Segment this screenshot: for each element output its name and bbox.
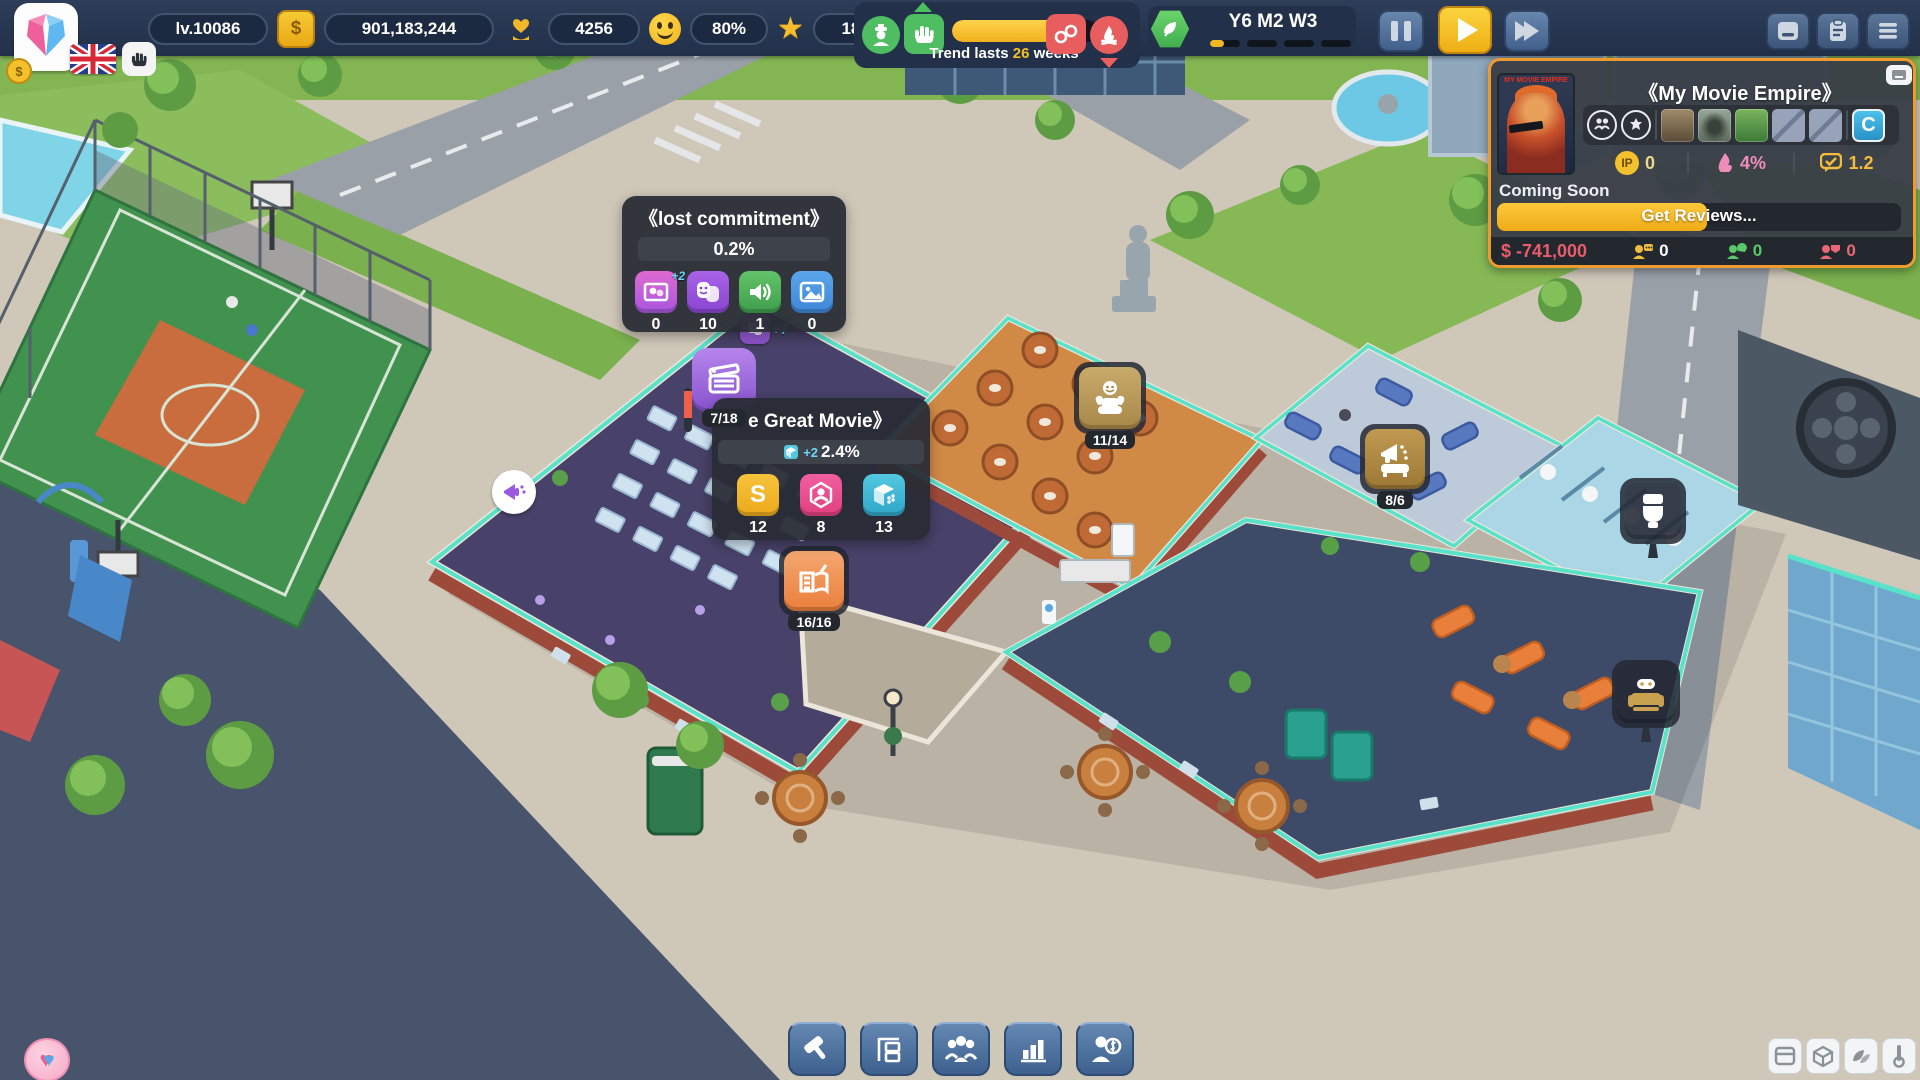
mascot (884, 727, 902, 745)
get-reviews-progress[interactable]: Get Reviews... (1497, 203, 1901, 231)
heat-flame-icon (1716, 152, 1734, 174)
menu-button[interactable] (1866, 12, 1910, 50)
fans-value: 4256 (575, 19, 613, 39)
studio-icon: S (737, 474, 779, 516)
megaphone-icon (501, 479, 527, 505)
pause-icon (1391, 21, 1398, 41)
movie-balance: $ -741,000 (1501, 241, 1632, 262)
level-value: lv.10086 (176, 19, 241, 39)
review-check-icon (1820, 153, 1842, 173)
build-toolbar (788, 1022, 1134, 1076)
stat-value: 10 (699, 316, 717, 334)
trend-up-icon (914, 2, 932, 12)
star-icon: ★ (777, 13, 804, 45)
trend-indicator[interactable]: Trend lasts 26 weeks (854, 2, 1140, 68)
movie-share: 2.4% (821, 442, 860, 462)
week-progress (1210, 40, 1351, 47)
viewers-count: 0 (1659, 241, 1668, 261)
hammer-icon (800, 1032, 834, 1066)
date-display: Y6 M2 W3 (1148, 6, 1356, 52)
scene-thumbnail-1[interactable] (1661, 109, 1694, 142)
lounge-badge[interactable] (1612, 660, 1680, 742)
staff-icon (944, 1033, 978, 1065)
actor-desk-icon (1079, 367, 1141, 429)
cards-button[interactable] (1766, 12, 1810, 50)
finance-button[interactable] (1076, 1022, 1134, 1076)
fans-pill: 4256 (548, 13, 640, 45)
staff-button[interactable] (932, 1022, 990, 1076)
minimize-icon (1892, 70, 1906, 80)
crew-badge[interactable]: C (1852, 109, 1885, 142)
set-icon (863, 474, 905, 516)
movie-poster: MY MOVIE EMPIRE (1499, 75, 1573, 173)
fan-hand-icon (503, 11, 539, 47)
megaphone-couch-icon (1365, 429, 1425, 489)
viewers-icon (1632, 242, 1654, 260)
build-button[interactable] (788, 1022, 846, 1076)
heart-icon: ♥ (43, 1051, 54, 1070)
hud-stats: lv.10086 $ 901,183,244 4256 80% ★ 18 (148, 10, 889, 48)
script-room-badge[interactable]: 16/16 (779, 546, 849, 631)
toilet-icon (1625, 483, 1681, 539)
stat-value: 0 (652, 316, 661, 334)
get-reviews-label: Get Reviews... (1497, 206, 1901, 226)
game-screen: +7 7/18 16/16 (0, 0, 1920, 1080)
stat-value: 1 (756, 316, 765, 334)
scene-thumbnail-3[interactable] (1735, 109, 1768, 142)
script-capacity: 16/16 (788, 613, 839, 631)
gem-heart-icon (23, 12, 69, 62)
drama-masks-icon (687, 271, 729, 313)
stat-value: 13 (875, 519, 893, 537)
fist-icon (128, 48, 150, 70)
set-mini-icon (782, 443, 800, 461)
likes-button[interactable]: ♥ ♥ (24, 1038, 70, 1080)
money-value: 901,183,244 (362, 19, 457, 39)
card-icon (1776, 20, 1800, 42)
leaf-icon (1850, 1046, 1872, 1066)
happiness-icon (649, 13, 681, 45)
campfire-icon (1090, 16, 1128, 54)
play-button[interactable] (1438, 6, 1492, 54)
play-icon (1458, 18, 1478, 42)
script-book-icon (784, 551, 844, 611)
empty-scene-slot[interactable] (1809, 109, 1842, 142)
staff-buff-bubble[interactable] (492, 470, 536, 514)
movie-project-panel[interactable]: MY MOVIE EMPIRE 《My Movie Empire》 (1488, 58, 1916, 268)
movie-boost: +2 (803, 445, 818, 460)
casting-icon (800, 474, 842, 516)
empty-scene-slot[interactable] (1772, 109, 1805, 142)
rating-value: 1.2 (1848, 153, 1873, 174)
stat-value: 0 (808, 316, 817, 334)
audio-icon (739, 271, 781, 313)
poster-title: MY MOVIE EMPIRE (1499, 77, 1573, 84)
trend-down-icon (1100, 58, 1118, 68)
stat-value: 8 (817, 519, 826, 537)
sofa-game-icon (1617, 665, 1675, 723)
movement-badge[interactable] (122, 42, 156, 76)
negative-reviews-icon (1819, 242, 1841, 260)
furniture-icon (873, 1033, 905, 1065)
movie-title: 《My Movie Empire》 (1579, 77, 1901, 106)
handcuffs-icon (1046, 14, 1086, 54)
ip-icon: IP (1615, 151, 1639, 175)
coin-icon: $ (277, 10, 315, 48)
movie-tooltip-title: e Great Movie》 (748, 406, 926, 433)
temperature-button[interactable] (1882, 1038, 1916, 1074)
ip-value: 0 (1645, 153, 1655, 174)
money-pill: 901,183,244 (324, 13, 494, 45)
game-date: Y6 M2 W3 (1198, 11, 1348, 33)
stats-button[interactable] (1004, 1022, 1062, 1076)
trend-share: 0.2% (638, 237, 830, 261)
menu-icon (1877, 21, 1899, 41)
toilet-badge[interactable] (1620, 478, 1686, 558)
heat-value: 4% (1740, 153, 1766, 174)
movie-status: Coming Soon (1499, 181, 1609, 201)
stat-badge: +2 (671, 269, 685, 283)
stat-value: 12 (749, 519, 767, 537)
positive-reviews-icon (1726, 242, 1748, 260)
trend-tooltip: 《lost commitment》 0.2% +2 0 (622, 196, 846, 332)
cube-icon (1812, 1045, 1834, 1067)
environment-button[interactable] (1844, 1038, 1878, 1074)
movie-footer: $ -741,000 0 0 (1491, 237, 1913, 265)
furniture-button[interactable] (860, 1022, 918, 1076)
marketing-room-badge[interactable]: 8/6 (1360, 424, 1430, 509)
filming-progress-bar (684, 388, 692, 432)
happiness-pill: 80% (690, 13, 768, 45)
marketing-capacity: 8/6 (1377, 491, 1412, 509)
positive-count: 0 (1753, 241, 1762, 261)
image-icon (791, 271, 833, 313)
hr-finance-icon (1088, 1033, 1122, 1065)
movie-stats-row: IP 0 4% 1.2 (1583, 149, 1899, 177)
coin-badge: $ (6, 58, 32, 84)
scene-thumbnail-2[interactable] (1698, 109, 1731, 142)
fast-forward-button[interactable] (1504, 10, 1550, 52)
casting-capacity: 11/14 (1085, 431, 1135, 449)
tasks-button[interactable] (1816, 12, 1860, 50)
audience-genre-icon (1587, 110, 1617, 140)
negative-count: 0 (1846, 241, 1855, 261)
drama-show-icon: +2 (635, 271, 677, 313)
movie-slots-row: C (1583, 105, 1899, 145)
thermometer-icon (1891, 1044, 1907, 1068)
chart-icon (1017, 1033, 1049, 1065)
level-pill: lv.10086 (148, 13, 268, 45)
trend-tooltip-title: 《lost commitment》 (622, 204, 846, 231)
panel-toggle-button[interactable] (1768, 1038, 1802, 1074)
rating-leaf-icon (1621, 110, 1651, 140)
season-leaf-icon (1150, 9, 1190, 49)
view-utilities (1768, 1038, 1916, 1074)
clipboard-icon (1827, 19, 1849, 43)
casting-room-badge[interactable]: 11/14 (1074, 362, 1146, 449)
collapse-panel-button[interactable] (1886, 65, 1912, 85)
fountain (1334, 72, 1442, 144)
window-icon (1774, 1046, 1796, 1066)
uk-flag-icon[interactable] (70, 44, 116, 74)
filming-capacity: 7/18 (702, 409, 745, 427)
pause-button[interactable] (1378, 10, 1424, 52)
3d-view-button[interactable] (1806, 1038, 1840, 1074)
happiness-value: 80% (712, 19, 746, 39)
